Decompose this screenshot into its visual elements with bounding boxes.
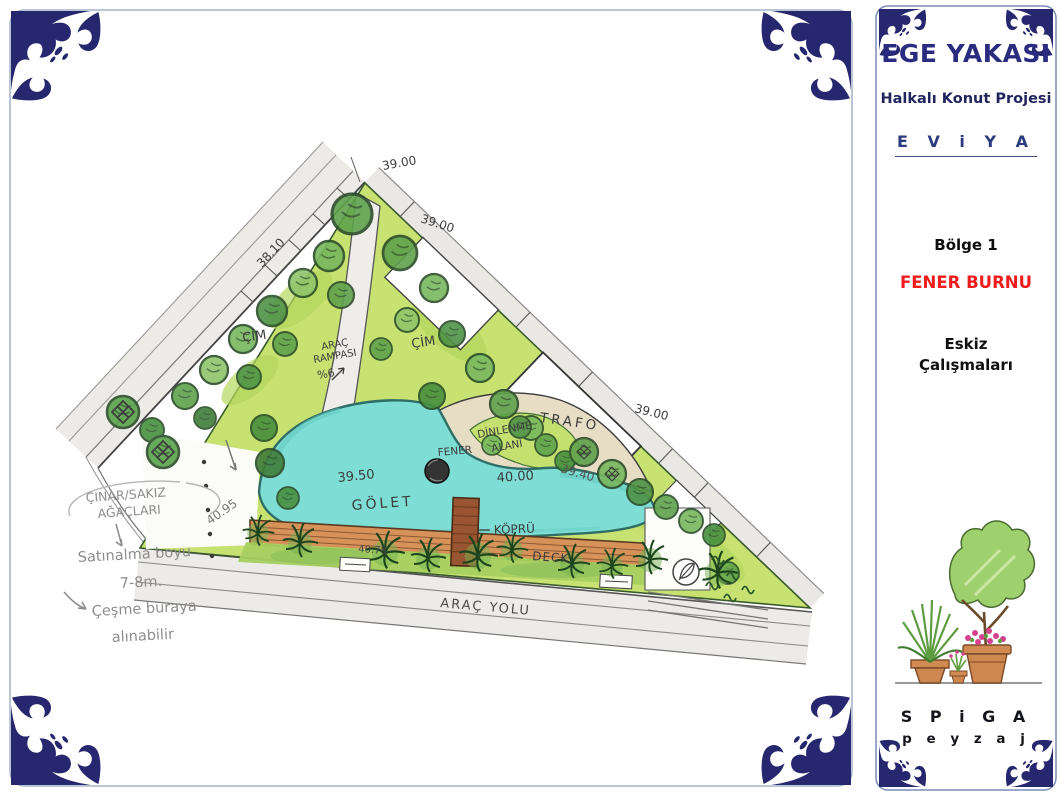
tree-symbol bbox=[172, 383, 198, 409]
corner-ornament-icon bbox=[762, 11, 851, 100]
grass-label: ÇİM bbox=[410, 333, 436, 352]
tree-symbol bbox=[273, 332, 297, 356]
tree-symbol bbox=[466, 354, 494, 382]
elevation-label: 39.00 bbox=[381, 153, 417, 173]
project-title: EGE YAKASI bbox=[876, 40, 1056, 69]
brand-name-text: E V i Y A bbox=[895, 133, 1037, 157]
tree-symbol bbox=[679, 509, 703, 533]
region-label: Bölge 1 bbox=[876, 237, 1056, 254]
site-plan: 39.00 39.00 38.10 39.00 39.40 39.50 40.0… bbox=[56, 142, 824, 664]
deck-label: DECK bbox=[532, 549, 570, 566]
corner-ornament-icon bbox=[11, 696, 100, 785]
tree-symbol bbox=[277, 487, 299, 509]
tree-symbol bbox=[627, 479, 653, 505]
elevation-label: 40.00 bbox=[496, 468, 534, 486]
tree-symbol bbox=[370, 338, 392, 360]
grass-label: ÇİM bbox=[241, 327, 267, 346]
down-arrow-icon bbox=[116, 524, 122, 546]
tree-symbol bbox=[490, 390, 518, 418]
logo-plants-illustration bbox=[895, 521, 1042, 683]
tree-symbol bbox=[535, 434, 557, 456]
arrow-icon bbox=[64, 592, 86, 609]
tree-symbol bbox=[332, 194, 372, 234]
note-text: 7-8m. bbox=[119, 574, 162, 592]
tree-symbol bbox=[251, 415, 277, 441]
project-subtitle: Halkalı Konut Projesi bbox=[876, 91, 1056, 108]
zone-name: FENER BURNU bbox=[876, 274, 1056, 293]
flower-pot bbox=[963, 645, 1011, 654]
presentation-board: 39.00 39.00 38.10 39.00 39.40 39.50 40.0… bbox=[0, 0, 1060, 795]
corner-ornament-icon bbox=[11, 11, 100, 100]
tree-symbol bbox=[328, 282, 354, 308]
brand-name: E V i Y A bbox=[876, 133, 1056, 157]
tree-symbol bbox=[289, 269, 317, 297]
note-text: Çeşme buraya bbox=[91, 599, 197, 620]
page: { "sidebar": { "title": "EGE YAKASI", "s… bbox=[0, 0, 1060, 795]
phase-label: Eskiz bbox=[876, 336, 1056, 353]
tree-symbol bbox=[314, 241, 344, 271]
tree-symbol bbox=[654, 495, 678, 519]
site-plan-svg: 39.00 39.00 38.10 39.00 39.40 39.50 40.0… bbox=[0, 0, 1060, 795]
tree-symbol bbox=[703, 524, 725, 546]
spiky-plant bbox=[898, 600, 962, 662]
tree-canopy bbox=[950, 521, 1035, 607]
tree-symbol bbox=[256, 449, 284, 477]
logo-name: S P i G A bbox=[876, 708, 1056, 726]
tree-symbol bbox=[257, 296, 287, 326]
tree-symbol bbox=[237, 365, 261, 389]
tree-symbol bbox=[200, 356, 228, 384]
tree-symbol bbox=[439, 321, 465, 347]
tree-symbol bbox=[419, 383, 445, 409]
flower-pot bbox=[950, 671, 967, 676]
logo-tagline: p e y z a j bbox=[876, 732, 1056, 748]
phase-label: Çalışmaları bbox=[876, 357, 1056, 374]
bridge-label: KÖPRÜ bbox=[494, 520, 536, 537]
tree-symbol bbox=[395, 308, 419, 332]
tree-symbol bbox=[383, 236, 417, 270]
leaf-symbol-icon bbox=[673, 559, 699, 585]
lantern-symbol bbox=[425, 459, 449, 483]
tree-symbol bbox=[420, 274, 448, 302]
corner-ornament-icon bbox=[762, 696, 851, 785]
tree-symbol bbox=[194, 407, 216, 429]
elevation-label: 40.78 bbox=[358, 544, 387, 557]
note-text: alınabilir bbox=[111, 627, 174, 646]
